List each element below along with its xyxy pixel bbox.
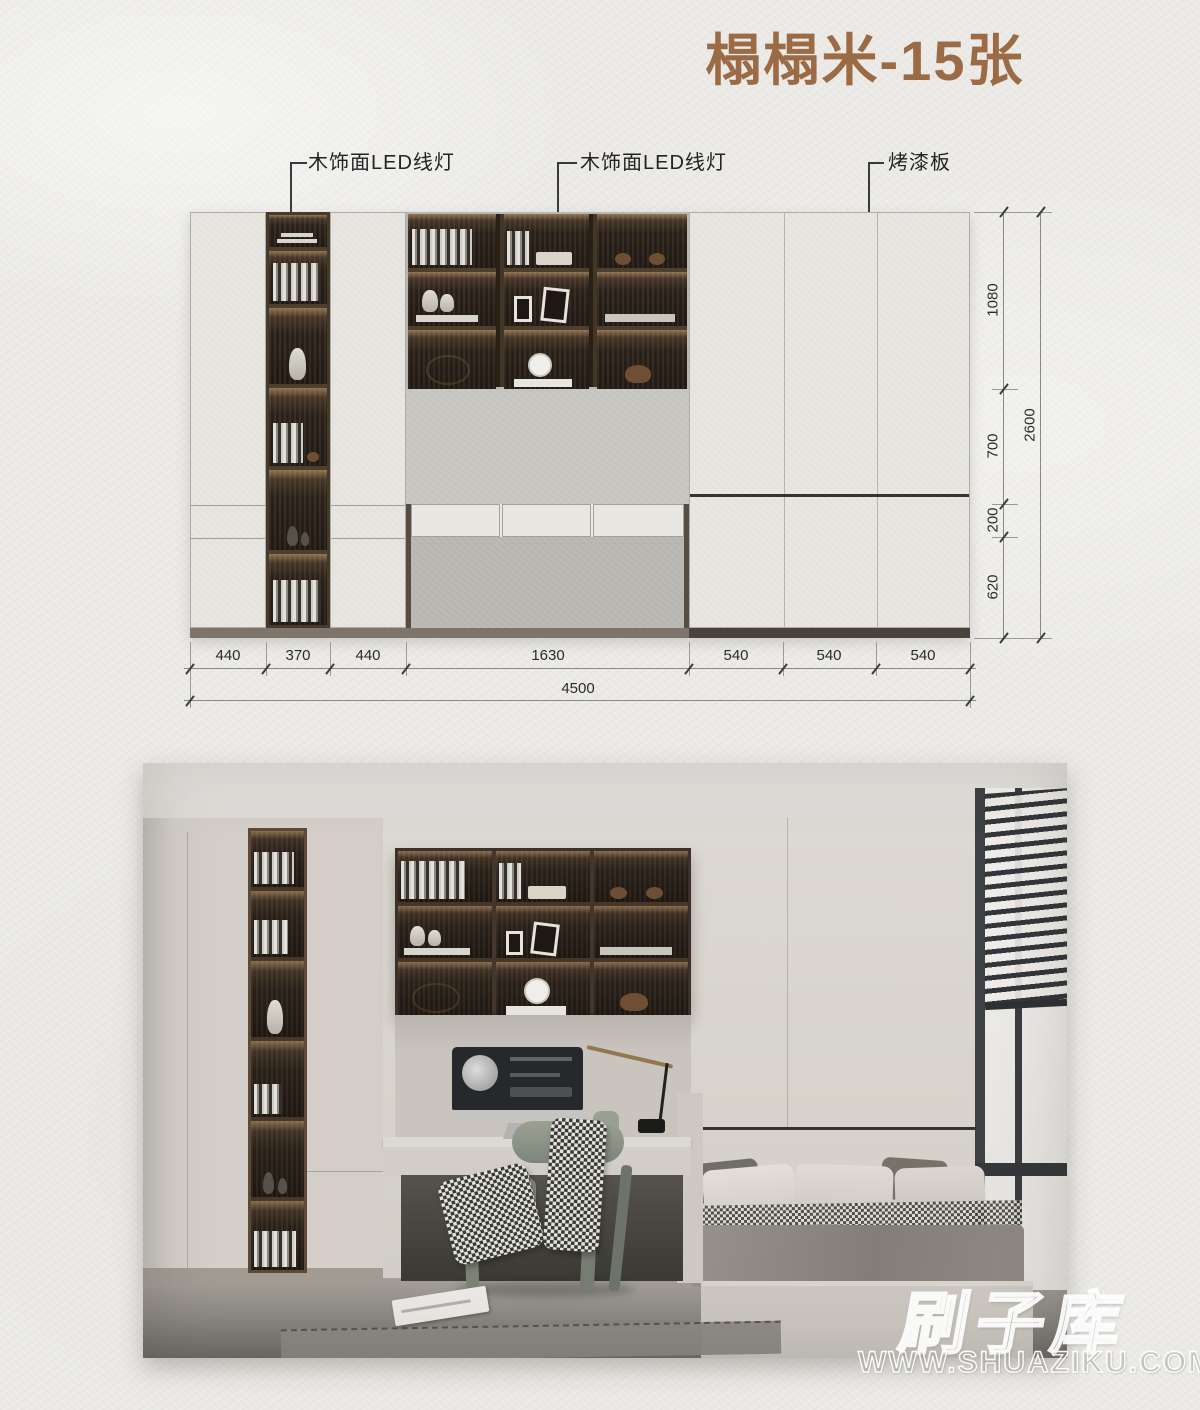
door-seam bbox=[191, 505, 265, 506]
dimension-label-total-width: 4500 bbox=[561, 680, 594, 697]
dimension-label: 540 bbox=[723, 647, 748, 664]
dimension-label: 540 bbox=[816, 647, 841, 664]
books bbox=[273, 423, 303, 463]
blanket bbox=[542, 1117, 607, 1253]
door-seam bbox=[331, 505, 405, 506]
annotation-label-paint: 烤漆板 bbox=[888, 146, 951, 175]
bookshelf-grid bbox=[406, 212, 689, 389]
extension-line bbox=[783, 642, 784, 676]
extension-line bbox=[689, 642, 690, 676]
page-title: 榻榻米-15张 bbox=[640, 16, 1090, 97]
annotation-label-led-left: 木饰面LED线灯 bbox=[308, 146, 455, 175]
decor-object bbox=[615, 253, 631, 265]
shelf-cell bbox=[408, 214, 496, 272]
imac-screen bbox=[452, 1047, 583, 1110]
dimension-line-total bbox=[184, 700, 976, 701]
wall-seam bbox=[787, 818, 788, 1128]
books bbox=[507, 231, 529, 265]
dimension-line bbox=[1003, 212, 1004, 638]
dimension-line bbox=[184, 668, 976, 669]
leader-line bbox=[868, 162, 884, 164]
books bbox=[277, 239, 317, 243]
door-seam bbox=[331, 538, 405, 539]
shelf-compartment bbox=[269, 215, 327, 251]
lamp-base bbox=[638, 1119, 665, 1133]
window-blinds bbox=[985, 788, 1067, 1006]
vase bbox=[287, 526, 298, 546]
extension-line bbox=[876, 642, 877, 676]
screen-widget bbox=[510, 1073, 560, 1077]
screen-moon bbox=[462, 1055, 498, 1091]
door-seam bbox=[877, 213, 878, 627]
vase bbox=[440, 294, 454, 312]
vase bbox=[422, 290, 438, 312]
sculpture bbox=[625, 365, 651, 383]
shelf-compartment bbox=[269, 554, 327, 625]
open-shelf-column bbox=[266, 212, 330, 628]
shelf-compartment bbox=[269, 470, 327, 554]
dimension-label: 1080 bbox=[985, 283, 1002, 316]
vase bbox=[301, 532, 309, 546]
magazine-line bbox=[401, 1299, 471, 1313]
tray-box bbox=[536, 252, 572, 265]
cabinet-column-left bbox=[190, 212, 266, 628]
window-frame-bar bbox=[975, 1163, 1067, 1176]
plinth bbox=[190, 628, 689, 638]
leader-line bbox=[290, 162, 307, 164]
dimension-label: 620 bbox=[985, 574, 1002, 599]
door-seam bbox=[191, 538, 265, 539]
extension-line bbox=[406, 642, 407, 676]
books bbox=[605, 314, 675, 322]
drawer-front bbox=[502, 504, 591, 537]
dimension-label: 700 bbox=[985, 433, 1002, 458]
dimension-label: 440 bbox=[215, 647, 240, 664]
niche-shelf bbox=[248, 828, 307, 1273]
books bbox=[412, 229, 472, 265]
door-seam bbox=[307, 1171, 383, 1172]
photo-bookshelf bbox=[395, 848, 691, 1015]
plinth bbox=[689, 628, 970, 638]
decor-object bbox=[307, 452, 319, 462]
shelf-cell bbox=[504, 214, 589, 272]
books bbox=[273, 580, 321, 622]
dimension-line-total bbox=[1040, 212, 1041, 638]
shelf-cell bbox=[504, 272, 589, 330]
photo-frame bbox=[514, 296, 532, 322]
watermark-url: WWW.SHUAZIKU.COM bbox=[858, 1346, 1200, 1380]
wardrobe-split-line bbox=[690, 494, 969, 497]
design-sheet: 榻榻米-15张 木饰面LED线灯 木饰面LED线灯 烤漆板 bbox=[0, 0, 1200, 1410]
shelf-cell bbox=[597, 214, 687, 272]
shelf-compartment bbox=[269, 308, 327, 388]
dimension-label: 1630 bbox=[531, 647, 564, 664]
wardrobe-section bbox=[689, 212, 970, 628]
clock bbox=[528, 353, 552, 377]
extension-line bbox=[330, 642, 331, 676]
books bbox=[416, 315, 478, 322]
headboard-groove bbox=[690, 1127, 976, 1130]
drawer-front bbox=[411, 504, 500, 537]
bicycle-art bbox=[426, 355, 470, 385]
dimension-label: 440 bbox=[355, 647, 380, 664]
elevation-drawing bbox=[190, 212, 970, 638]
dimension-label: 200 bbox=[985, 507, 1002, 532]
shelf-compartment bbox=[269, 388, 327, 470]
leader-line bbox=[557, 162, 577, 164]
dimension-label-total-height: 2600 bbox=[1022, 408, 1039, 441]
door-seam bbox=[187, 832, 188, 1268]
vase bbox=[289, 348, 306, 380]
shelf-cell bbox=[504, 330, 589, 391]
books bbox=[281, 233, 313, 237]
annotation-label-led-mid: 木饰面LED线灯 bbox=[580, 146, 727, 175]
screen-widget bbox=[510, 1057, 572, 1061]
shelf-cell bbox=[408, 330, 496, 391]
shelf-cell bbox=[408, 272, 496, 330]
cabinet-column bbox=[330, 212, 406, 628]
screen-widget bbox=[510, 1087, 572, 1097]
drawer-front bbox=[593, 504, 684, 537]
shelf-cell bbox=[597, 272, 687, 330]
photo-frame bbox=[540, 287, 569, 324]
dimension-label: 540 bbox=[910, 647, 935, 664]
books bbox=[514, 379, 572, 387]
shelf-cell bbox=[597, 330, 687, 391]
door-seam bbox=[784, 213, 785, 627]
books bbox=[273, 263, 319, 301]
dimension-label: 370 bbox=[285, 647, 310, 664]
decor-object bbox=[649, 253, 665, 265]
desk-back-panel bbox=[406, 389, 689, 504]
shelf-compartment bbox=[269, 251, 327, 308]
extension-line bbox=[266, 642, 267, 676]
lower-panel bbox=[411, 537, 684, 628]
